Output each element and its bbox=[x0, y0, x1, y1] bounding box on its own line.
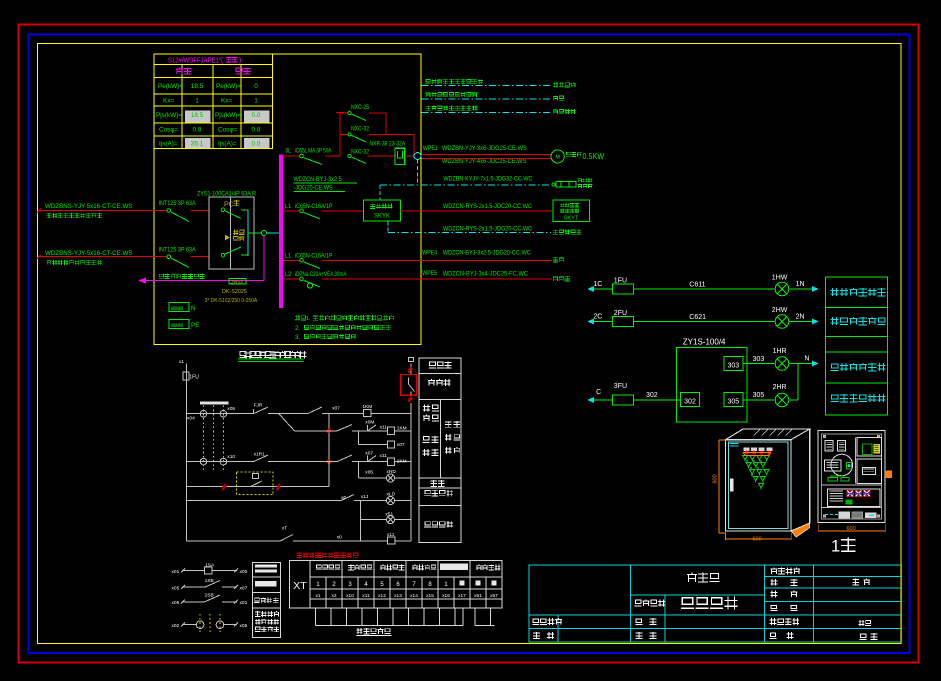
svg-text:WDZCN-BYJ-3x2.5: WDZCN-BYJ-3x2.5 bbox=[294, 177, 343, 183]
svg-text:xT: xT bbox=[282, 526, 287, 532]
svg-text:xHD: xHD bbox=[387, 469, 397, 475]
svg-text:35.1: 35.1 bbox=[191, 141, 204, 148]
svg-text:S12#/WDFFJAPE1*(: S12#/WDFFJAPE1*( bbox=[168, 57, 224, 65]
svg-text:x00: x00 bbox=[240, 569, 248, 575]
svg-text:2N: 2N bbox=[796, 314, 805, 321]
svg-text:INT125 3P 63A: INT125 3P 63A bbox=[159, 201, 196, 207]
svg-text:x1: x1 bbox=[315, 593, 320, 599]
svg-text:x0: x0 bbox=[337, 534, 342, 540]
svg-text:0: 0 bbox=[254, 83, 258, 90]
svg-text:x16: x16 bbox=[442, 593, 450, 599]
svg-text:600: 600 bbox=[753, 537, 762, 543]
svg-text:L1: L1 bbox=[285, 204, 291, 210]
svg-text:WDZBN-YJY-4x6-JDC25-CE.WS: WDZBN-YJY-4x6-JDC25-CE.WS bbox=[442, 159, 526, 165]
svg-text:Cosφ=: Cosφ= bbox=[159, 127, 179, 134]
svg-text:WDZCN-BYJ-3x2.5-JDG20-CC.WC: WDZCN-BYJ-3x2.5-JDG20-CC.WC bbox=[443, 250, 532, 256]
svg-text:N: N bbox=[191, 305, 196, 312]
svg-text:ZNVA: ZNVA bbox=[231, 279, 244, 285]
svg-text:1FU: 1FU bbox=[189, 375, 199, 381]
svg-text:INT125 3P 63A: INT125 3P 63A bbox=[159, 247, 196, 253]
svg-text:x05: x05 bbox=[227, 406, 235, 412]
svg-text:2HR: 2HR bbox=[773, 384, 787, 391]
svg-text:Cosφ=: Cosφ= bbox=[218, 127, 238, 134]
svg-text:600: 600 bbox=[713, 474, 719, 483]
svg-text:Pe(kW)=: Pe(kW)= bbox=[216, 83, 241, 90]
svg-text:x05: x05 bbox=[172, 586, 180, 592]
svg-text:2.: 2. bbox=[295, 325, 301, 332]
svg-text:x05: x05 bbox=[240, 623, 248, 629]
svg-text:WDZBNS-YJY-5x16-CT-CE.WS: WDZBNS-YJY-5x16-CT-CE.WS bbox=[45, 203, 132, 210]
svg-text:1FU: 1FU bbox=[614, 278, 627, 285]
svg-text:x07: x07 bbox=[365, 450, 373, 456]
svg-text:x01: x01 bbox=[240, 600, 248, 606]
svg-text:WPE4: WPE4 bbox=[422, 250, 438, 256]
svg-text:2SB: 2SB bbox=[205, 593, 214, 599]
svg-text:PE: PE bbox=[191, 322, 200, 329]
svg-text:305: 305 bbox=[727, 398, 739, 405]
svg-text:DK-S2025: DK-S2025 bbox=[222, 289, 247, 295]
svg-text:x01: x01 bbox=[172, 569, 180, 575]
svg-text:-JDG20-CE.WS: -JDG20-CE.WS bbox=[294, 185, 333, 191]
svg-text:x02: x02 bbox=[172, 623, 180, 629]
svg-text:3* DK-5102/250 0-250A: 3* DK-5102/250 0-250A bbox=[205, 298, 258, 304]
svg-text:1SA: 1SA bbox=[205, 563, 215, 569]
svg-text:SKYT: SKYT bbox=[563, 216, 579, 222]
svg-text:C611: C611 bbox=[689, 282, 705, 289]
svg-text:WPE5: WPE5 bbox=[422, 271, 437, 277]
svg-text:305: 305 bbox=[753, 392, 765, 399]
svg-text:iC65L MA 3P 50A: iC65L MA 3P 50A bbox=[295, 148, 332, 155]
svg-text:1: 1 bbox=[195, 98, 199, 105]
svg-text:WDZCN-RYS-2x1.5-JDC20-CC.WC: WDZCN-RYS-2x1.5-JDC20-CC.WC bbox=[443, 204, 533, 210]
svg-text:NXC-25: NXC-25 bbox=[351, 105, 369, 111]
svg-text:3L: 3L bbox=[285, 148, 292, 154]
svg-text:x06: x06 bbox=[172, 600, 180, 606]
svg-text:3.: 3. bbox=[295, 334, 301, 341]
svg-text:x0: x0 bbox=[341, 495, 346, 501]
svg-text:1: 1 bbox=[831, 538, 840, 556]
svg-text:M: M bbox=[555, 155, 560, 161]
svg-text:2C: 2C bbox=[593, 314, 602, 321]
svg-text:Ijs(A)=: Ijs(A)= bbox=[159, 141, 178, 148]
svg-text:0.8: 0.8 bbox=[193, 127, 202, 134]
svg-text:x0M: x0M bbox=[365, 420, 374, 426]
svg-text:0.8: 0.8 bbox=[252, 127, 261, 134]
svg-text:Kx=: Kx= bbox=[163, 98, 174, 105]
svg-text:1HW: 1HW bbox=[772, 275, 788, 282]
svg-text:18.5: 18.5 bbox=[191, 112, 204, 119]
svg-text:N: N bbox=[804, 356, 809, 363]
svg-text:x11: x11 bbox=[380, 425, 388, 431]
svg-text:Pjs(kW)=: Pjs(kW)= bbox=[215, 112, 241, 119]
svg-text:x07: x07 bbox=[397, 442, 405, 448]
svg-text:x57: x57 bbox=[490, 593, 498, 599]
svg-text:Pe(kW)=: Pe(kW)= bbox=[158, 83, 183, 90]
svg-text:WDZBN-YJY-3x6-JDG25-CE.WS: WDZBN-YJY-3x6-JDG25-CE.WS bbox=[442, 146, 527, 152]
svg-text:Pjs(kW)=: Pjs(kW)= bbox=[156, 112, 182, 119]
svg-text:xLD: xLD bbox=[387, 492, 396, 498]
svg-text:L2: L2 bbox=[285, 272, 291, 278]
svg-text:3FU: 3FU bbox=[614, 383, 627, 390]
svg-text:WDZCN-RYS-2x1.5-JDG20-CC.WC: WDZCN-RYS-2x1.5-JDG20-CC.WC bbox=[443, 226, 533, 232]
svg-text:PC: PC bbox=[224, 202, 234, 209]
svg-text:x51: x51 bbox=[474, 593, 482, 599]
svg-text:2FU: 2FU bbox=[614, 310, 627, 317]
svg-text:18.5: 18.5 bbox=[191, 83, 204, 90]
svg-text:NXC-32: NXC-32 bbox=[351, 149, 369, 155]
svg-text:WDZCN-BYJ-3x4-JDC25-FC.WC: WDZCN-BYJ-3x4-JDC25-FC.WC bbox=[443, 271, 529, 277]
svg-text:x1R1: x1R1 bbox=[254, 452, 266, 458]
svg-text:1SB: 1SB bbox=[205, 578, 214, 584]
svg-text:øøøø: øøøø bbox=[171, 305, 184, 312]
svg-text:x51: x51 bbox=[385, 512, 393, 518]
svg-text:): ) bbox=[239, 58, 241, 65]
svg-text:ZY1S-100/4: ZY1S-100/4 bbox=[683, 337, 726, 346]
svg-text:x10: x10 bbox=[227, 454, 235, 460]
svg-text:x2: x2 bbox=[331, 593, 336, 599]
svg-text:C621: C621 bbox=[689, 314, 706, 321]
svg-text:1KM: 1KM bbox=[362, 404, 372, 410]
svg-text:0.0: 0.0 bbox=[252, 112, 261, 119]
svg-text:0.0: 0.0 bbox=[252, 141, 261, 148]
svg-text:x1: x1 bbox=[179, 359, 184, 365]
svg-text:x12: x12 bbox=[378, 593, 386, 599]
svg-text:2HW: 2HW bbox=[772, 307, 788, 314]
svg-text:NXR-38 23-32A: NXR-38 23-32A bbox=[369, 141, 405, 147]
svg-text:x13: x13 bbox=[394, 593, 402, 599]
svg-text:øøøø: øøøø bbox=[171, 322, 184, 329]
svg-text:C: C bbox=[596, 389, 601, 396]
svg-text:600: 600 bbox=[847, 526, 856, 532]
svg-text:303: 303 bbox=[753, 356, 765, 363]
svg-text:x15: x15 bbox=[426, 593, 434, 599]
svg-text:1KM: 1KM bbox=[397, 426, 407, 432]
svg-text:XT: XT bbox=[293, 580, 307, 592]
svg-text:x17: x17 bbox=[458, 593, 466, 599]
svg-text:x07: x07 bbox=[240, 586, 248, 592]
svg-text:WDZBNS-YJY-5x16-CT-CE.WS: WDZBNS-YJY-5x16-CT-CE.WS bbox=[45, 250, 132, 257]
svg-text:1.: 1. bbox=[306, 316, 310, 322]
svg-text:0.5KW: 0.5KW bbox=[583, 152, 605, 162]
svg-text:FJR: FJR bbox=[254, 403, 263, 409]
svg-text:x14: x14 bbox=[410, 593, 418, 599]
svg-text:L1: L1 bbox=[285, 253, 291, 259]
svg-text:1: 1 bbox=[254, 98, 258, 105]
svg-text:x11: x11 bbox=[380, 453, 388, 459]
svg-text:x11: x11 bbox=[387, 532, 395, 538]
svg-text:x1J: x1J bbox=[361, 494, 369, 500]
svg-text:302: 302 bbox=[646, 392, 658, 399]
svg-text:Kx=: Kx= bbox=[221, 98, 232, 105]
svg-text:303: 303 bbox=[727, 363, 739, 370]
svg-text:x04: x04 bbox=[187, 416, 195, 422]
svg-text:WDZBN-KYJY-7x1.5-JDG32-CC.WC: WDZBN-KYJY-7x1.5-JDG32-CC.WC bbox=[443, 176, 532, 182]
svg-text:Ijs(A)=: Ijs(A)= bbox=[218, 141, 237, 148]
svg-text:x11: x11 bbox=[362, 593, 370, 599]
svg-text:1HR: 1HR bbox=[773, 348, 787, 355]
svg-text:1N: 1N bbox=[796, 281, 805, 288]
svg-text:x07: x07 bbox=[332, 405, 340, 411]
svg-text:1C: 1C bbox=[593, 281, 602, 288]
svg-text:2KM: 2KM bbox=[397, 459, 407, 465]
svg-text:302: 302 bbox=[684, 398, 696, 405]
svg-text:SKYK: SKYK bbox=[374, 214, 390, 220]
svg-text:x05: x05 bbox=[365, 470, 373, 476]
svg-text:x10: x10 bbox=[346, 593, 354, 599]
svg-text:NXC-32: NXC-32 bbox=[351, 126, 369, 132]
svg-text:WPE1: WPE1 bbox=[423, 146, 438, 152]
